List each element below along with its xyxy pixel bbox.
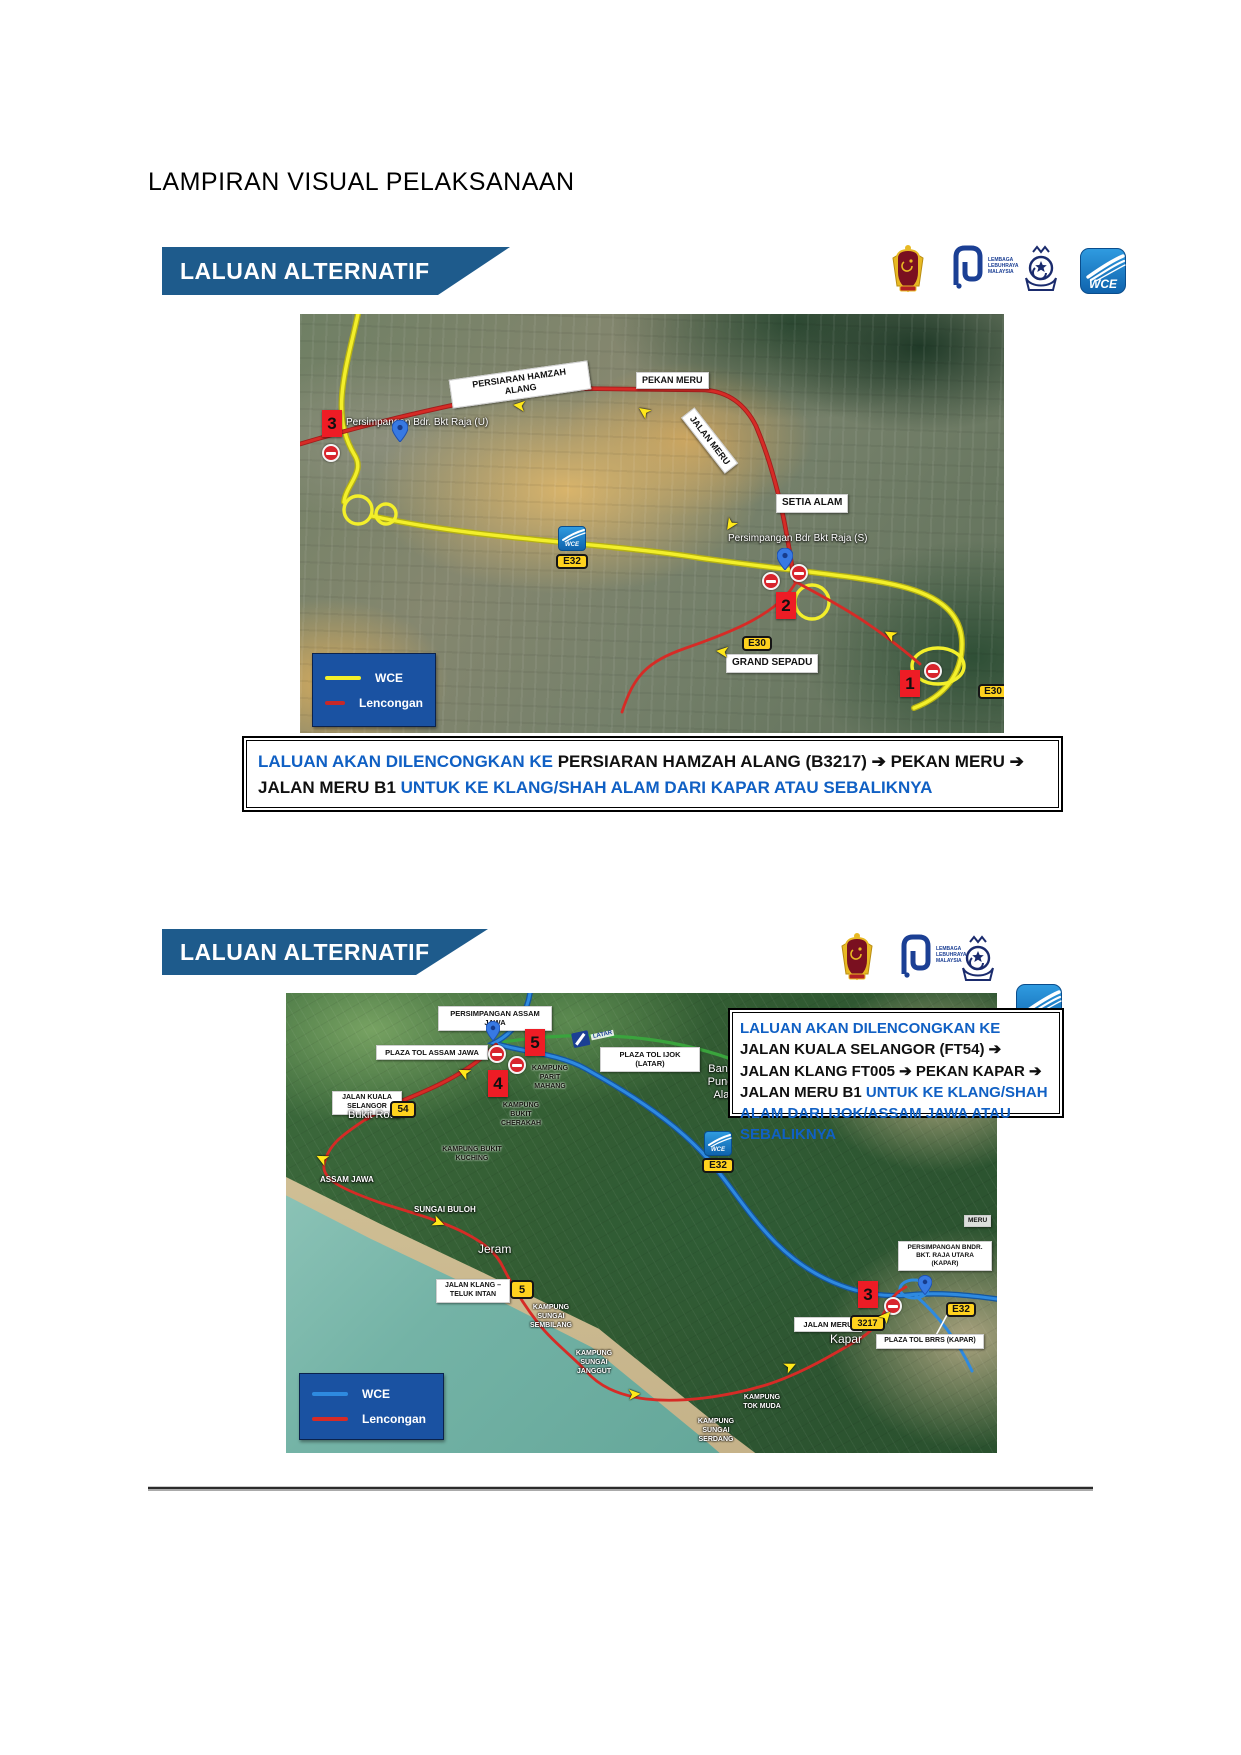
wce-swoosh-icon bbox=[706, 1133, 732, 1147]
detour-marker-2: 2 bbox=[776, 592, 796, 619]
section2-caption: LALUAN AKAN DILENCONGKAN KE JALAN KUALA … bbox=[728, 1008, 1064, 1118]
wce-badge-text: WCE bbox=[559, 542, 585, 548]
detour-marker-3: 3 bbox=[322, 410, 342, 437]
interchange-label-bkt-raja-utara: PERSIMPANGAN BNDR. BKT. RAJA UTARA (KAPA… bbox=[898, 1241, 992, 1271]
detour-marker-4: 4 bbox=[488, 1070, 508, 1097]
no-entry-icon bbox=[508, 1056, 526, 1074]
section1-banner-label: LALUAN ALTERNATIF bbox=[180, 258, 430, 285]
lencongan-line-swatch bbox=[325, 701, 345, 705]
map-pin-icon bbox=[392, 420, 408, 442]
route-shield-e32: E32 bbox=[702, 1158, 734, 1173]
village-label-tok-muda: KAMPUNG TOK MUDA bbox=[738, 1393, 786, 1411]
caption1-part1: LALUAN AKAN DILENCONGKAN KE bbox=[258, 752, 558, 771]
wce-swoosh-icon bbox=[560, 528, 586, 542]
document-page: { "page": { "title": "LAMPIRAN VISUAL PE… bbox=[0, 0, 1241, 1755]
lencongan-line-swatch bbox=[312, 1417, 348, 1421]
pdrm-crest-icon bbox=[957, 934, 999, 984]
village-label-bukit-kuching: KAMPUNG BUKIT KUCHING bbox=[442, 1145, 502, 1163]
caption2-part1: LALUAN AKAN DILENCONGKAN KE bbox=[740, 1020, 1000, 1037]
route-arrow-icon: ➤ bbox=[627, 1387, 641, 1403]
latar-text: LATAR bbox=[590, 1029, 614, 1040]
legend-wce-label: WCE bbox=[362, 1387, 390, 1401]
section2-banner: LALUAN ALTERNATIF bbox=[162, 929, 488, 975]
wce-logo-text: WCE bbox=[1081, 277, 1125, 291]
legend-row-wce: WCE bbox=[312, 1387, 431, 1401]
village-label-sungai-janggut: KAMPUNG SUNGAI JANGGUT bbox=[572, 1349, 616, 1376]
toll-label-brrs-kapar: PLAZA TOL BRRS (KAPAR) bbox=[876, 1334, 984, 1349]
legend-lencongan-label: Lencongan bbox=[362, 1412, 426, 1426]
map2-legend: WCE Lencongan bbox=[299, 1373, 444, 1440]
map-pin-icon bbox=[777, 548, 793, 570]
place-label-sungai-buloh: SUNGAI BULOH bbox=[414, 1205, 476, 1214]
pdrm-crest-icon bbox=[1020, 244, 1062, 294]
footer-divider bbox=[148, 1487, 1093, 1489]
no-entry-icon bbox=[488, 1045, 506, 1063]
map-pin-icon bbox=[486, 1021, 500, 1041]
village-label-parit-mahang: KAMPUNG PARIT MAHANG bbox=[524, 1064, 576, 1091]
section2-banner-label: LALUAN ALTERNATIF bbox=[180, 939, 430, 966]
village-label-bukit-cherakah: KAMPUNG BUKIT CHERAKAH bbox=[496, 1101, 546, 1128]
selangor-crest-icon bbox=[884, 242, 932, 295]
llm-logo-text: LEMBAGA LEBUHRAYA MALAYSIA bbox=[988, 257, 1018, 276]
toll-label-ijok-latar: PLAZA TOL IJOK (LATAR) bbox=[600, 1047, 700, 1072]
no-entry-icon bbox=[322, 444, 340, 462]
legend-row-lencongan: Lencongan bbox=[325, 696, 423, 710]
legend-row-wce: WCE bbox=[325, 671, 423, 685]
wce-route-badge: WCE bbox=[558, 526, 586, 551]
wce-badge-text: WCE bbox=[705, 1147, 731, 1153]
wce-line-swatch bbox=[312, 1392, 348, 1396]
route-shield-e32: E32 bbox=[556, 554, 588, 569]
route-shield-e30: E30 bbox=[742, 636, 772, 651]
map-pin-icon bbox=[918, 1275, 932, 1295]
place-label-jeram: Jeram bbox=[478, 1242, 511, 1256]
wce-line-swatch bbox=[325, 676, 361, 680]
route-shield-54: 54 bbox=[390, 1101, 416, 1118]
detour-marker-5: 5 bbox=[525, 1029, 545, 1056]
village-label-sungai-sembilang: KAMPUNG SUNGAI SEMBILANG bbox=[528, 1303, 574, 1330]
route-shield-e30: E30 bbox=[978, 684, 1004, 699]
place-label-kapar: Kapar bbox=[830, 1332, 862, 1346]
toll-label-assam-jawa: PLAZA TOL ASSAM JAWA bbox=[376, 1045, 488, 1060]
satellite-map-1: PERSIARAN HAMZAH ALANG PEKAN MERU JALAN … bbox=[300, 314, 1004, 733]
interchange-label-bkt-raja-u: Persimpangan Bdr. Bkt Raja (U) bbox=[346, 417, 488, 428]
village-label-sungai-serdang: KAMPUNG SUNGAI SERDANG bbox=[694, 1417, 738, 1444]
legend-row-lencongan: Lencongan bbox=[312, 1412, 431, 1426]
route-arrow-icon: ➤ bbox=[715, 643, 729, 659]
detour-marker-1: 1 bbox=[900, 670, 920, 697]
area-label-meru: MERU bbox=[964, 1215, 991, 1227]
detour-marker-3: 3 bbox=[858, 1281, 878, 1308]
legend-lencongan-label: Lencongan bbox=[359, 696, 423, 710]
route-arrow-icon: ➤ bbox=[512, 397, 526, 413]
place-label-assam-jawa: ASSAM JAWA bbox=[320, 1175, 374, 1184]
section1-caption: LALUAN AKAN DILENCONGKAN KE PERSIARAN HA… bbox=[242, 736, 1063, 812]
road-label-jalan-klang-teluk-intan: JALAN KLANG – TELUK INTAN bbox=[436, 1279, 510, 1303]
llm-loop-icon bbox=[950, 243, 984, 289]
legend-wce-label: WCE bbox=[375, 671, 403, 685]
page-title: LAMPIRAN VISUAL PELAKSANAAN bbox=[148, 168, 575, 197]
map1-legend: WCE Lencongan bbox=[312, 653, 436, 727]
interchange-label-bkt-raja-s: Persimpangan Bdr Bkt Raja (S) bbox=[728, 533, 868, 544]
no-entry-icon bbox=[762, 572, 780, 590]
caption1-part3: UNTUK KE KLANG/SHAH ALAM DARI KAPAR ATAU… bbox=[401, 778, 933, 797]
area-label-setia-alam: SETIA ALAM bbox=[776, 494, 848, 513]
no-entry-icon bbox=[924, 662, 942, 680]
selangor-crest-icon bbox=[833, 930, 881, 983]
area-label-grand-sepadu: GRAND SEPADU bbox=[726, 654, 818, 673]
llm-loop-icon bbox=[898, 932, 932, 978]
route-shield-e32: E32 bbox=[946, 1302, 976, 1317]
wce-logo: WCE bbox=[1080, 248, 1126, 294]
route-shield-5: 5 bbox=[510, 1280, 534, 1299]
wce-route-badge: WCE bbox=[704, 1131, 732, 1156]
road-label-pekan-meru: PEKAN MERU bbox=[636, 372, 709, 389]
section1-banner: LALUAN ALTERNATIF bbox=[162, 247, 510, 295]
llm-logo: LEMBAGA LEBUHRAYA MALAYSIA bbox=[950, 243, 1018, 289]
